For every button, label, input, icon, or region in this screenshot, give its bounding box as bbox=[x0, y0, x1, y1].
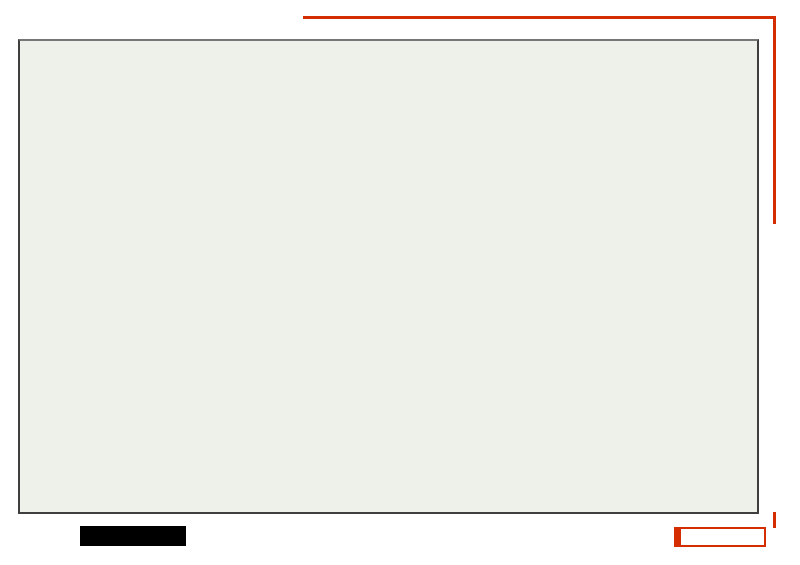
rendering-frame bbox=[18, 39, 759, 514]
aerial-rendering bbox=[20, 41, 757, 512]
vertical-title bbox=[760, 228, 786, 516]
date-box bbox=[674, 527, 766, 547]
accent-line-vertical bbox=[773, 16, 776, 224]
caption-badge bbox=[80, 526, 186, 546]
presentation-board: { "header": { "title": "HUBEISHENGJIAYUX… bbox=[0, 0, 800, 565]
accent-line-horizontal bbox=[303, 16, 775, 19]
